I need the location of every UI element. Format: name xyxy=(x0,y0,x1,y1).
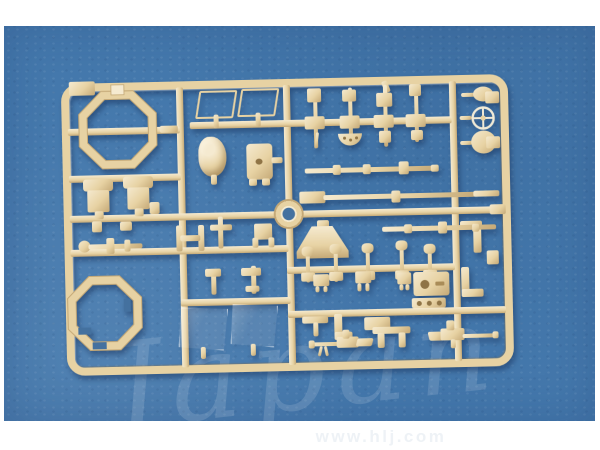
part-fragment xyxy=(329,244,341,254)
part-fragment xyxy=(88,243,142,249)
part-fragment xyxy=(307,88,321,102)
part-fragment xyxy=(355,136,358,139)
part-fragment xyxy=(315,286,319,292)
part-fragment xyxy=(376,93,392,107)
part-clamp-2 xyxy=(355,271,371,291)
part-periscope-1 xyxy=(203,268,226,294)
part-fragment xyxy=(106,238,114,254)
part-clamp-3 xyxy=(397,272,411,290)
part-hatch-ring xyxy=(63,268,149,358)
part-fragment xyxy=(397,272,411,284)
part-fragment xyxy=(78,327,91,334)
part-fragment xyxy=(431,165,439,172)
part-fragment xyxy=(299,191,325,204)
part-fragment xyxy=(473,190,499,197)
part-fragment xyxy=(95,211,104,219)
part-fragment xyxy=(340,115,360,128)
part-fragment xyxy=(251,344,256,356)
part-fragment xyxy=(451,339,456,348)
part-small-block xyxy=(120,222,132,231)
part-handwheel xyxy=(459,104,500,132)
part-drum-1 xyxy=(83,179,116,220)
part-fragment xyxy=(411,130,423,140)
part-fragment xyxy=(363,164,371,174)
part-fragment xyxy=(472,224,479,232)
part-fragment xyxy=(404,224,412,233)
part-pivot-assembly-2 xyxy=(337,87,364,152)
part-fragment xyxy=(437,300,442,305)
part-fragment xyxy=(463,333,497,338)
part-seat-pan xyxy=(198,136,231,185)
part-fragment xyxy=(124,240,130,252)
part-fragment xyxy=(313,274,329,286)
part-mount-block xyxy=(252,221,279,248)
part-fragment xyxy=(357,283,361,291)
part-fragment xyxy=(398,332,405,347)
handwheel-icon xyxy=(469,104,497,132)
part-small-block xyxy=(149,202,159,214)
part-axle-rod xyxy=(78,234,144,253)
part-fragment xyxy=(127,187,149,209)
part-fragment xyxy=(438,221,447,233)
part-fragment xyxy=(361,243,373,253)
part-fragment xyxy=(342,89,356,101)
part-fragment xyxy=(492,331,498,338)
part-perforated-strip xyxy=(412,297,448,310)
part-clear-panel-2 xyxy=(230,303,281,350)
part-fragment xyxy=(301,246,313,256)
part-equipment-box xyxy=(413,271,452,298)
part-lever xyxy=(210,216,233,248)
part-bracket xyxy=(176,225,205,252)
part-fragment xyxy=(342,330,349,339)
part-fragment xyxy=(377,333,384,348)
part-fragment xyxy=(262,178,270,185)
sprue-tab xyxy=(490,204,506,214)
part-fragment xyxy=(356,338,374,346)
part-machine-gun-1 xyxy=(308,331,373,356)
part-fragment xyxy=(365,283,369,291)
part-fragment xyxy=(435,281,444,285)
part-fragment xyxy=(124,299,131,312)
part-fragment xyxy=(180,235,200,241)
part-fragment xyxy=(461,289,483,297)
site-watermark: www.hlj.com xyxy=(316,427,447,447)
part-fragment xyxy=(268,237,274,247)
sprue xyxy=(61,74,515,376)
part-fragment xyxy=(423,244,435,254)
part-fragment xyxy=(218,216,224,248)
part-seat-frame-2 xyxy=(239,88,280,123)
part-fragment xyxy=(241,268,261,276)
sprue-tab xyxy=(487,250,499,264)
part-fragment xyxy=(324,346,329,356)
part-pivot-assembly-3 xyxy=(371,80,399,149)
part-fragment xyxy=(379,131,391,143)
part-fragment xyxy=(355,271,371,283)
sprue-gate-stub xyxy=(160,125,178,132)
sprue-tab xyxy=(485,91,499,103)
part-fragment xyxy=(417,300,422,305)
part-fragment xyxy=(67,275,143,351)
part-fragment xyxy=(230,303,279,348)
part-fragment xyxy=(399,161,409,174)
part-machine-gun-2 xyxy=(428,322,499,350)
part-fragment xyxy=(427,300,432,305)
part-fragment xyxy=(87,190,109,212)
part-periscope-2 xyxy=(241,266,266,295)
part-fitting-2 xyxy=(326,244,345,282)
product-photo: Japan xyxy=(0,0,600,450)
part-fragment xyxy=(271,157,282,163)
part-clamp-1 xyxy=(313,274,329,292)
sprue-tab xyxy=(486,136,500,148)
part-fragment xyxy=(329,272,343,281)
part-fragment xyxy=(249,179,257,186)
part-fragment xyxy=(309,340,315,348)
part-fragment xyxy=(343,137,346,140)
part-fragment xyxy=(78,90,157,169)
part-fragment xyxy=(135,208,144,216)
part-clear-panel-1 xyxy=(178,306,231,353)
part-fragment xyxy=(406,114,426,127)
part-fragment xyxy=(93,342,107,349)
part-fragment xyxy=(399,284,403,290)
part-fragment xyxy=(395,240,407,250)
part-pivot-assembly-4 xyxy=(405,84,430,147)
part-fragment xyxy=(205,269,221,277)
part-fragment xyxy=(349,139,352,142)
part-fragment xyxy=(405,284,409,290)
part-pivot-assembly-1 xyxy=(303,88,328,151)
part-turret-ring xyxy=(73,86,163,174)
part-fragment xyxy=(213,115,218,129)
part-fragment xyxy=(305,116,325,129)
part-fragment xyxy=(252,238,258,248)
part-fragment xyxy=(111,85,124,95)
part-fragment xyxy=(409,84,421,96)
part-fragment xyxy=(201,347,206,359)
photo-background: Japan xyxy=(4,26,595,421)
part-gun-mount xyxy=(372,326,410,349)
part-fragment xyxy=(480,115,485,120)
part-fragment xyxy=(391,190,400,202)
part-fragment xyxy=(323,286,327,292)
part-fragment xyxy=(374,115,394,128)
part-seat-frame-1 xyxy=(197,90,238,125)
part-fragment xyxy=(314,132,319,148)
part-fragment xyxy=(198,136,227,177)
part-fragment xyxy=(211,175,217,185)
part-fragment xyxy=(178,306,229,351)
part-fragment xyxy=(446,320,454,330)
part-gearbox xyxy=(246,143,283,186)
part-fragment xyxy=(245,286,259,292)
part-angle-bracket xyxy=(461,267,486,298)
part-fragment xyxy=(255,113,260,127)
part-fragment xyxy=(333,165,341,175)
part-fragment xyxy=(210,224,232,230)
part-small-block xyxy=(92,221,102,232)
part-fragment xyxy=(318,346,323,356)
